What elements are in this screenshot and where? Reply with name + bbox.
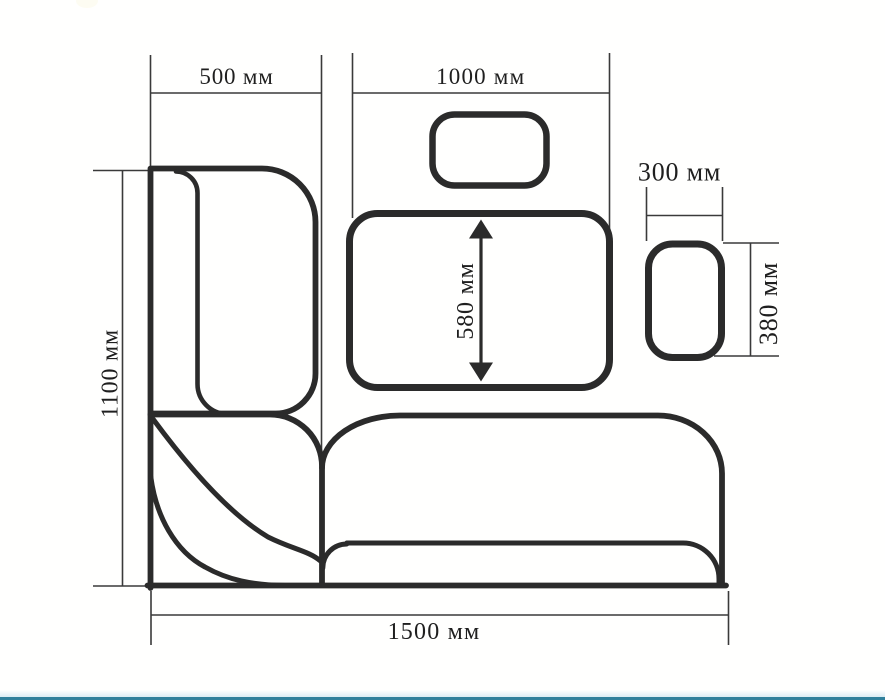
svg-text:380 мм: 380 мм [754, 262, 783, 345]
svg-text:580 мм: 580 мм [453, 262, 479, 339]
svg-text:300 мм: 300 мм [638, 158, 721, 187]
svg-text:1500 мм: 1500 мм [388, 619, 481, 645]
svg-text:500 мм: 500 мм [199, 64, 273, 89]
svg-text:1000 мм: 1000 мм [436, 64, 525, 89]
svg-text:1100 мм: 1100 мм [98, 329, 124, 418]
